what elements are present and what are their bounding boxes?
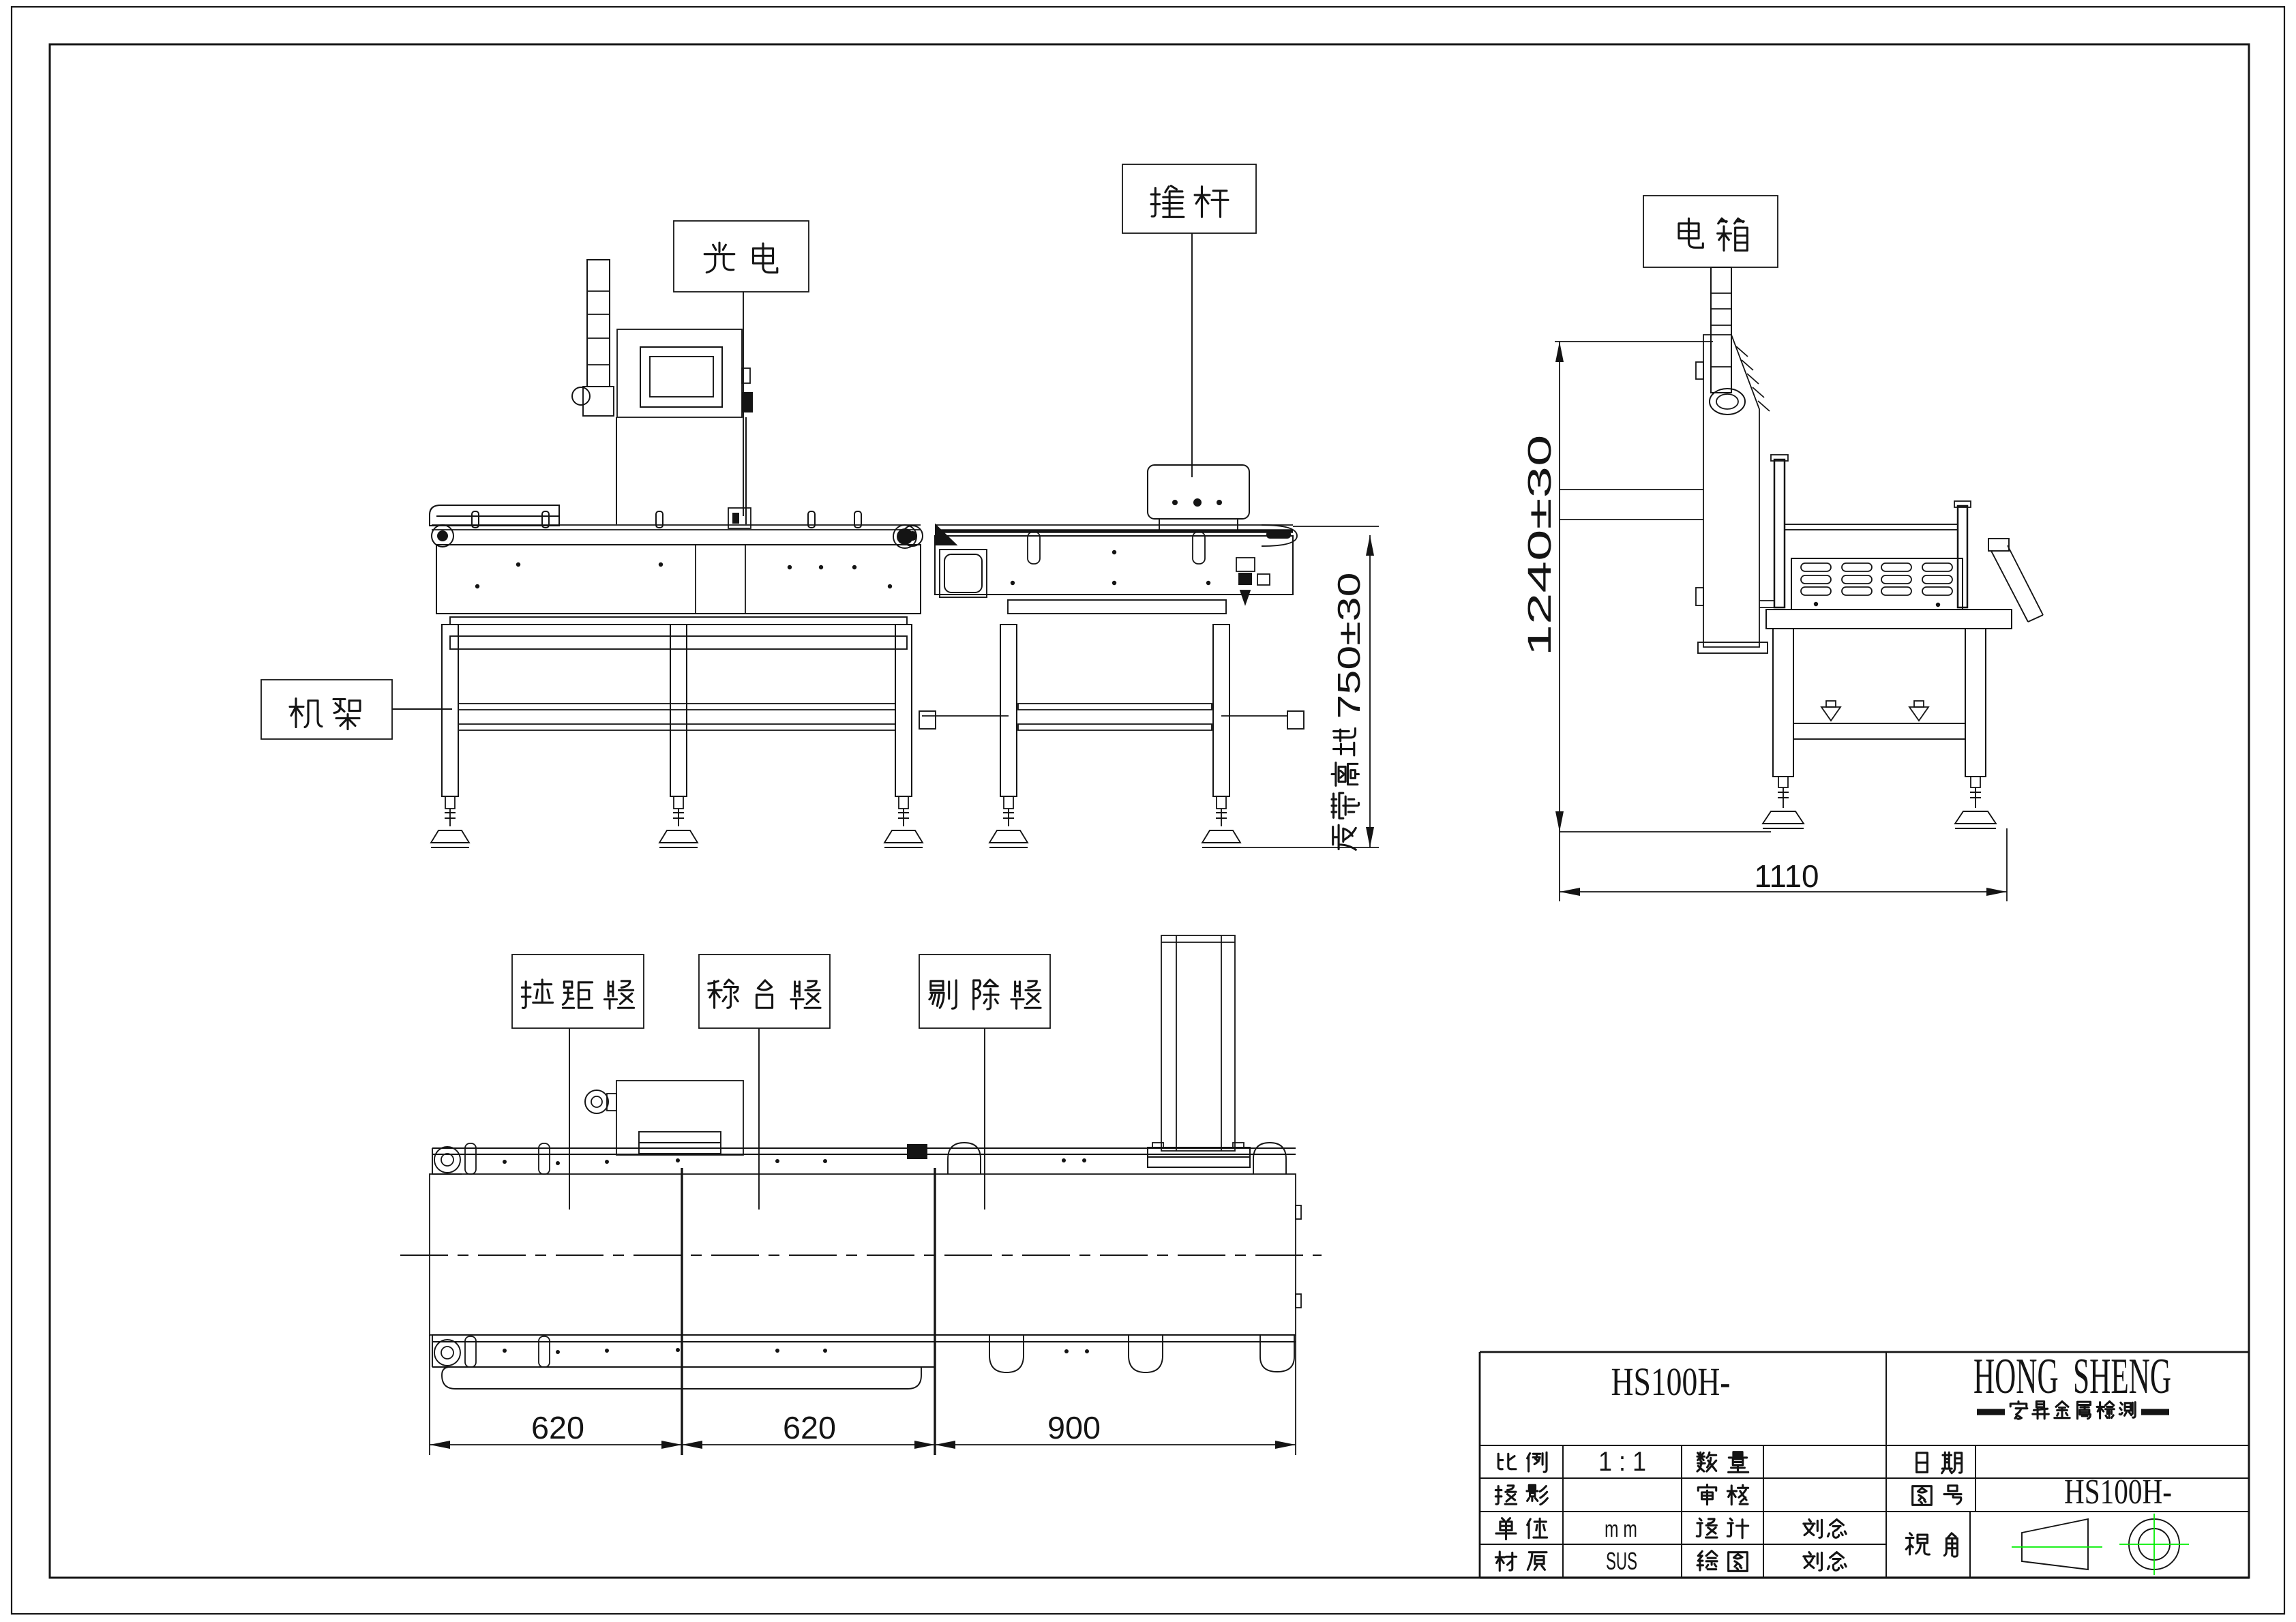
svg-text:1 : 1: 1 : 1 xyxy=(1598,1447,1646,1477)
svg-text:900: 900 xyxy=(1047,1410,1101,1445)
svg-text:1240±30: 1240±30 xyxy=(1522,435,1558,657)
svg-text:750±30: 750±30 xyxy=(1331,573,1367,719)
svg-text:HS100H-: HS100H- xyxy=(1611,1360,1731,1404)
svg-text:m m: m m xyxy=(1605,1516,1637,1542)
svg-text:SUS: SUS xyxy=(1606,1547,1637,1575)
svg-text:HS100H-: HS100H- xyxy=(2064,1473,2172,1512)
svg-text:620: 620 xyxy=(531,1410,584,1445)
svg-text:HONG SHENG: HONG SHENG xyxy=(1973,1349,2171,1405)
svg-text:620: 620 xyxy=(783,1410,836,1445)
svg-text:1110: 1110 xyxy=(1755,858,1819,894)
